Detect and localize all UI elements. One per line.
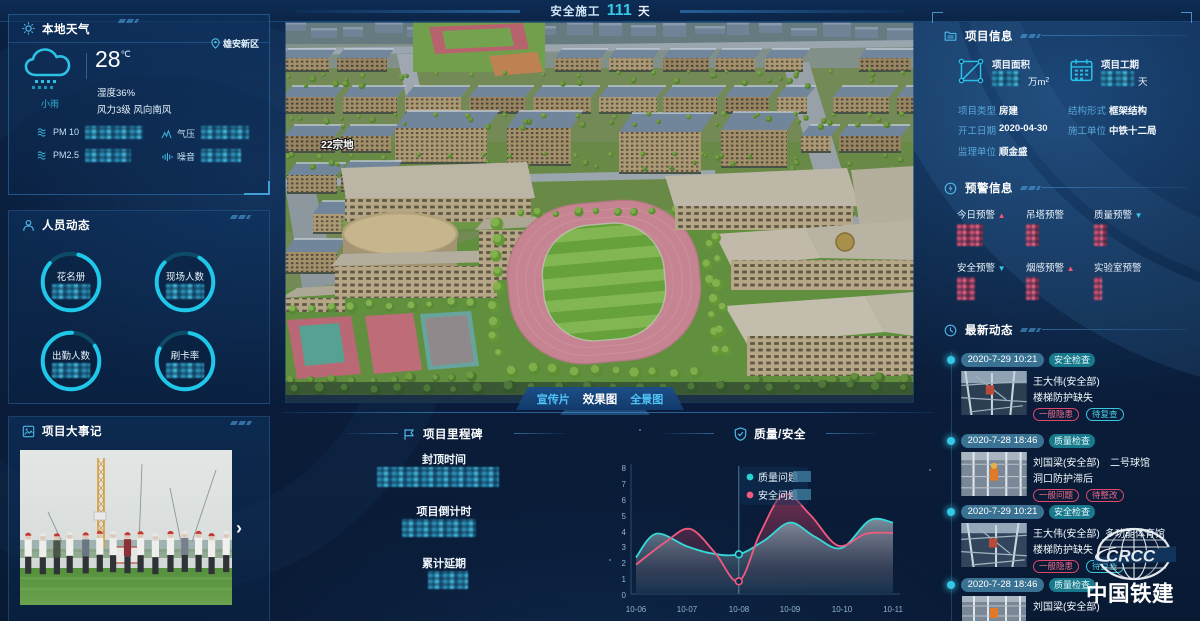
svg-text:0: 0	[622, 591, 627, 600]
svg-text:4: 4	[622, 528, 627, 537]
svg-text:CRCC: CRCC	[1106, 547, 1156, 566]
svg-text:10-07: 10-07	[677, 605, 698, 614]
svg-text:7: 7	[622, 480, 627, 489]
svg-text:2: 2	[622, 559, 627, 568]
svg-text:1: 1	[622, 575, 627, 584]
svg-text:8: 8	[622, 464, 627, 473]
svg-text:10-10: 10-10	[832, 605, 853, 614]
svg-text:10-11: 10-11	[883, 605, 903, 614]
svg-text:5: 5	[622, 512, 627, 521]
svg-text:6: 6	[622, 496, 627, 505]
svg-text:10-06: 10-06	[626, 605, 647, 614]
svg-text:22宗地: 22宗地	[321, 138, 354, 151]
svg-text:10-09: 10-09	[780, 605, 801, 614]
svg-text:安全问题: 安全问题	[758, 489, 798, 502]
svg-text:质量问题: 质量问题	[758, 471, 798, 484]
svg-text:3: 3	[622, 543, 627, 552]
svg-text:10-08: 10-08	[729, 605, 750, 614]
